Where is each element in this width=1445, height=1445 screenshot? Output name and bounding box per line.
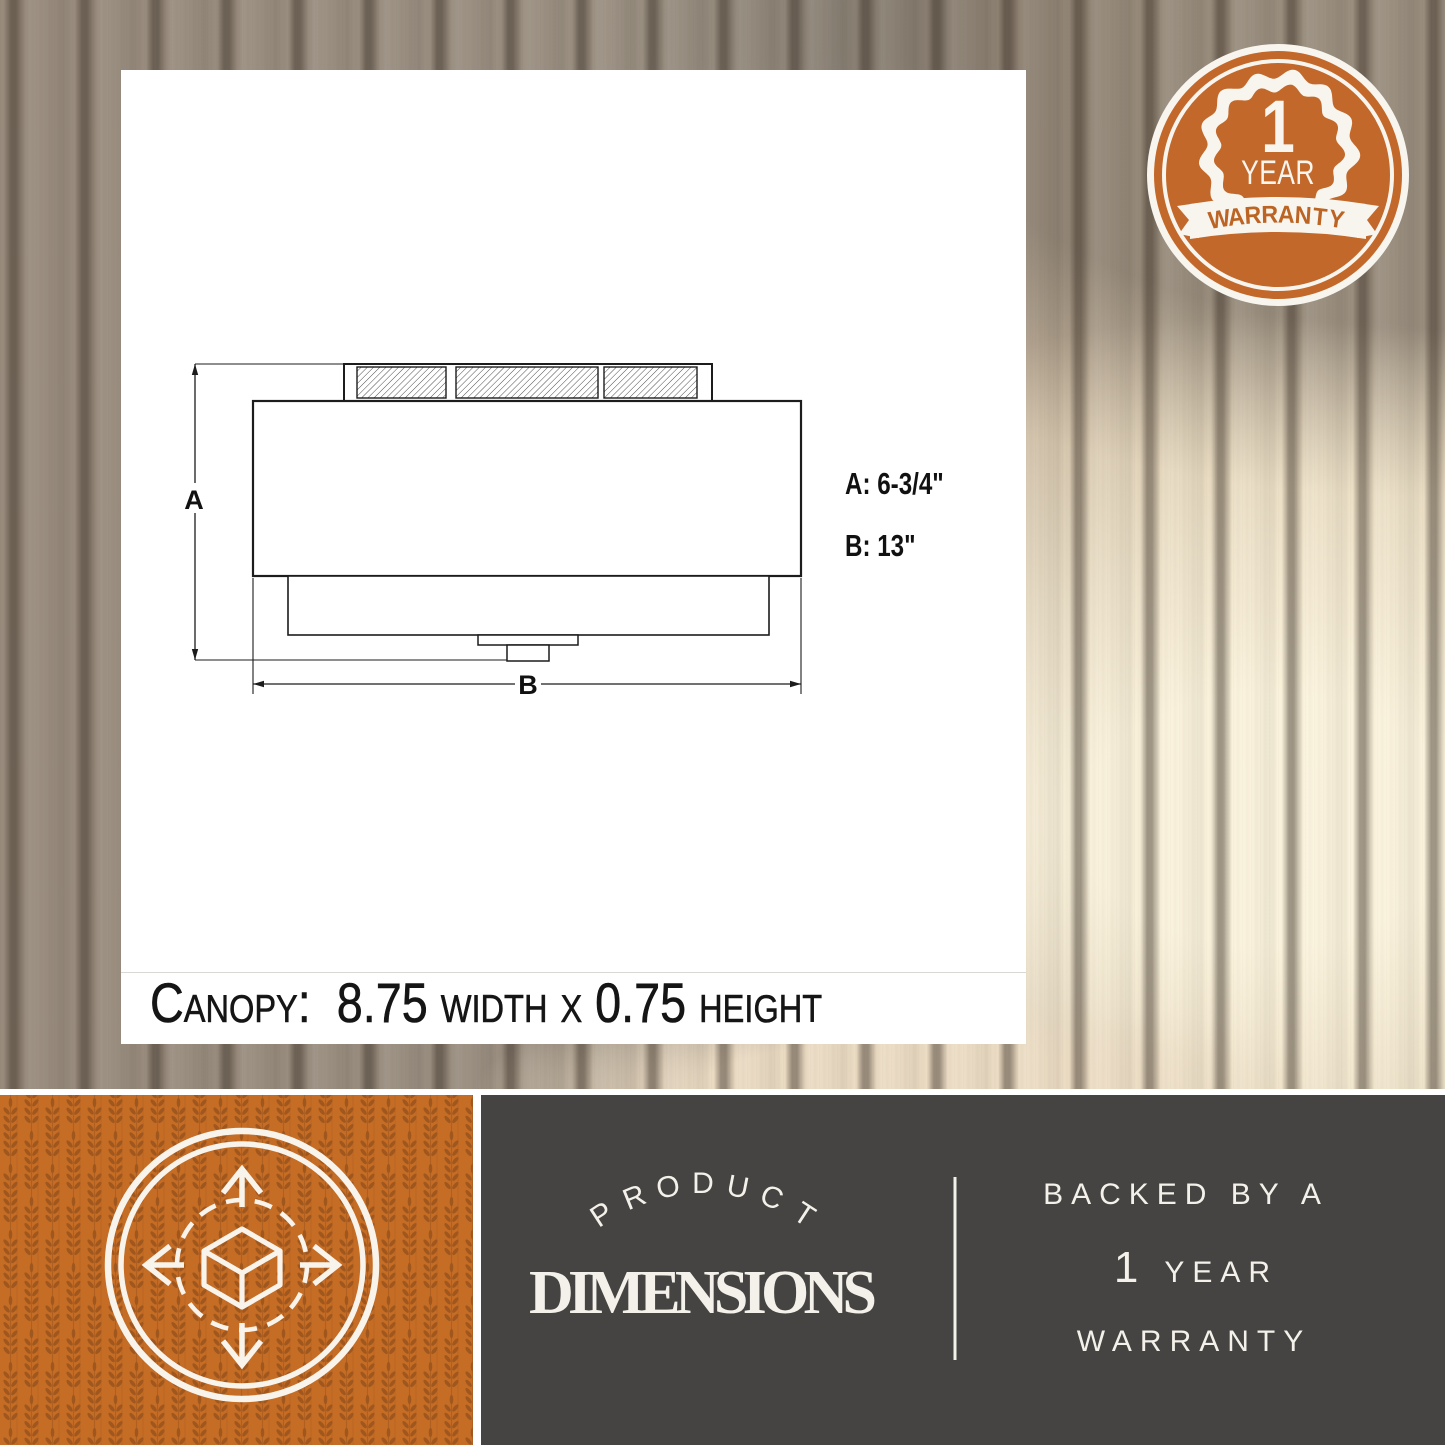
svg-text:R: R [1244,201,1262,230]
svg-text:A: A [1278,201,1295,229]
svg-text:B: 13": B: 13" [845,528,916,563]
svg-text:BACKED BY A: BACKED BY A [1043,1178,1329,1211]
svg-text:A: A [184,485,204,515]
svg-text:WARRANTY: WARRANTY [1077,1325,1312,1358]
svg-text:B: B [518,670,538,700]
svg-text:T: T [788,1196,821,1234]
svg-text:A: 6-3/4": A: 6-3/4" [845,466,944,501]
svg-text:DIMENSIONS: DIMENSIONS [529,1259,877,1327]
svg-text:A: A [1226,203,1246,232]
svg-text:P: P [584,1196,619,1235]
svg-text:R: R [618,1178,650,1217]
svg-text:C: C [755,1178,787,1217]
svg-text:O: O [654,1169,683,1206]
svg-text:N: N [1294,201,1312,230]
svg-text:R: R [1261,201,1278,229]
svg-text:D: D [692,1167,714,1200]
svg-text:YEAR: YEAR [1241,154,1315,192]
svg-text:1YEAR: 1YEAR [1114,1243,1278,1292]
svg-text:U: U [724,1169,752,1206]
